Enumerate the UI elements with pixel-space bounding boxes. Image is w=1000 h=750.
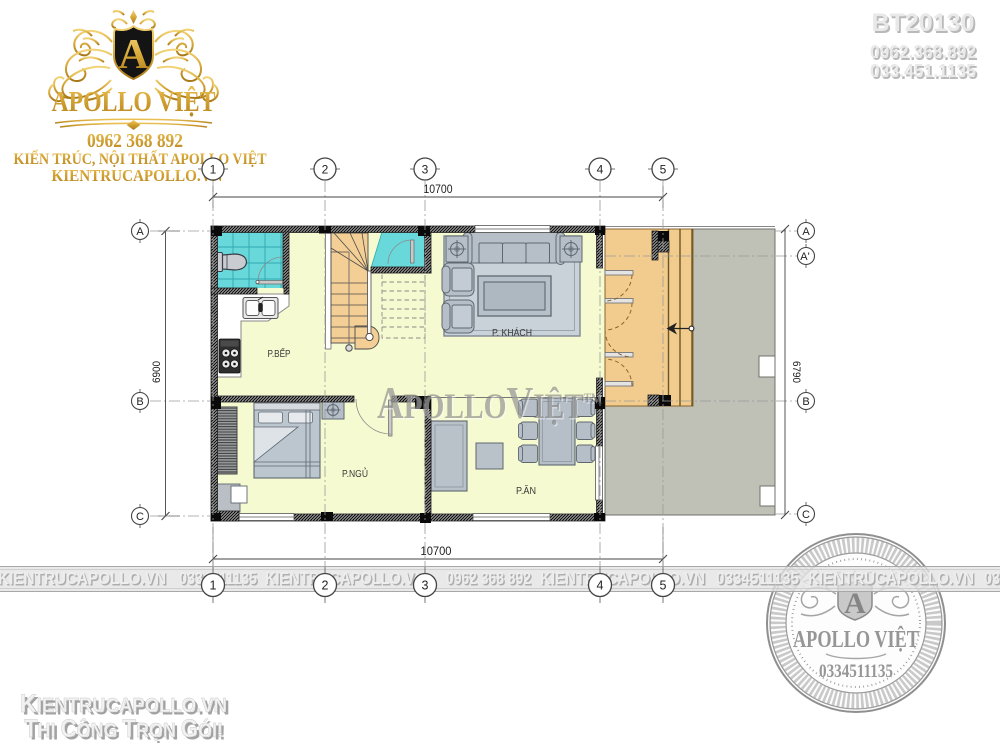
svg-text:3: 3 xyxy=(422,579,429,593)
svg-text:P.BẾP: P.BẾP xyxy=(268,347,291,360)
svg-text:C: C xyxy=(802,509,810,521)
svg-text:3: 3 xyxy=(422,163,429,177)
svg-text:6900: 6900 xyxy=(151,361,163,383)
svg-text:5: 5 xyxy=(660,579,667,593)
svg-text:03345: 03345 xyxy=(984,568,1000,588)
svg-text:0334511135: 0334511135 xyxy=(819,661,893,682)
svg-text:P.ĂN: P.ĂN xyxy=(516,484,536,497)
svg-text:B: B xyxy=(136,396,143,408)
svg-text:APOLLO VIỆT: APOLLO VIỆT xyxy=(793,627,919,653)
svg-text:P.NGỦ: P.NGỦ xyxy=(342,467,368,480)
svg-text:1: 1 xyxy=(210,579,217,593)
svg-text:0962 368 892: 0962 368 892 xyxy=(446,568,531,588)
svg-text:A: A xyxy=(118,32,149,78)
svg-text:B: B xyxy=(802,396,809,408)
svg-text:KIENTRUCAPOLLO.VN: KIENTRUCAPOLLO.VN xyxy=(265,568,425,588)
svg-text:5: 5 xyxy=(660,163,667,177)
svg-text:10700: 10700 xyxy=(424,184,453,196)
svg-text:2: 2 xyxy=(322,163,329,177)
svg-text:A': A' xyxy=(800,251,809,263)
svg-text:BT20130: BT20130 xyxy=(872,9,975,37)
svg-text:KIENTRUCAPOLLO.VN: KIENTRUCAPOLLO.VN xyxy=(52,166,224,185)
svg-text:A: A xyxy=(136,226,144,238)
svg-text:0962.368.892: 0962.368.892 xyxy=(870,42,976,62)
svg-text:10700: 10700 xyxy=(421,546,452,558)
svg-text:033.451.1135: 033.451.1135 xyxy=(870,61,976,81)
svg-text:KIENTRUCAPOLLO.VN: KIENTRUCAPOLLO.VN xyxy=(0,568,166,588)
svg-text:KIENTRUCAPOLLO.VN: KIENTRUCAPOLLO.VN xyxy=(20,690,227,718)
svg-text:0962 368 892: 0962 368 892 xyxy=(87,130,183,152)
svg-text:0334511135: 0334511135 xyxy=(716,568,799,588)
svg-text:P. KHÁCH: P. KHÁCH xyxy=(492,326,532,339)
svg-text:APOLLOVIỆTTM: APOLLOVIỆTTM xyxy=(377,378,601,428)
svg-text:C: C xyxy=(136,511,144,523)
svg-text:KIENTRUCAPOLLO.VN: KIENTRUCAPOLLO.VN xyxy=(540,568,705,588)
svg-text:APOLLO VIỆT: APOLLO VIỆT xyxy=(52,85,216,118)
svg-text:4: 4 xyxy=(597,163,604,177)
svg-text:1: 1 xyxy=(210,163,217,177)
svg-text:KIENTRUCAPOLLO.VN: KIENTRUCAPOLLO.VN xyxy=(808,568,974,588)
svg-text:2: 2 xyxy=(322,579,329,593)
svg-text:A: A xyxy=(802,226,810,238)
svg-text:THI CÔNG TRỌN GÓI!: THI CÔNG TRỌN GÓI! xyxy=(24,715,223,743)
svg-text:4: 4 xyxy=(597,579,604,593)
svg-text:6790: 6790 xyxy=(790,361,802,383)
